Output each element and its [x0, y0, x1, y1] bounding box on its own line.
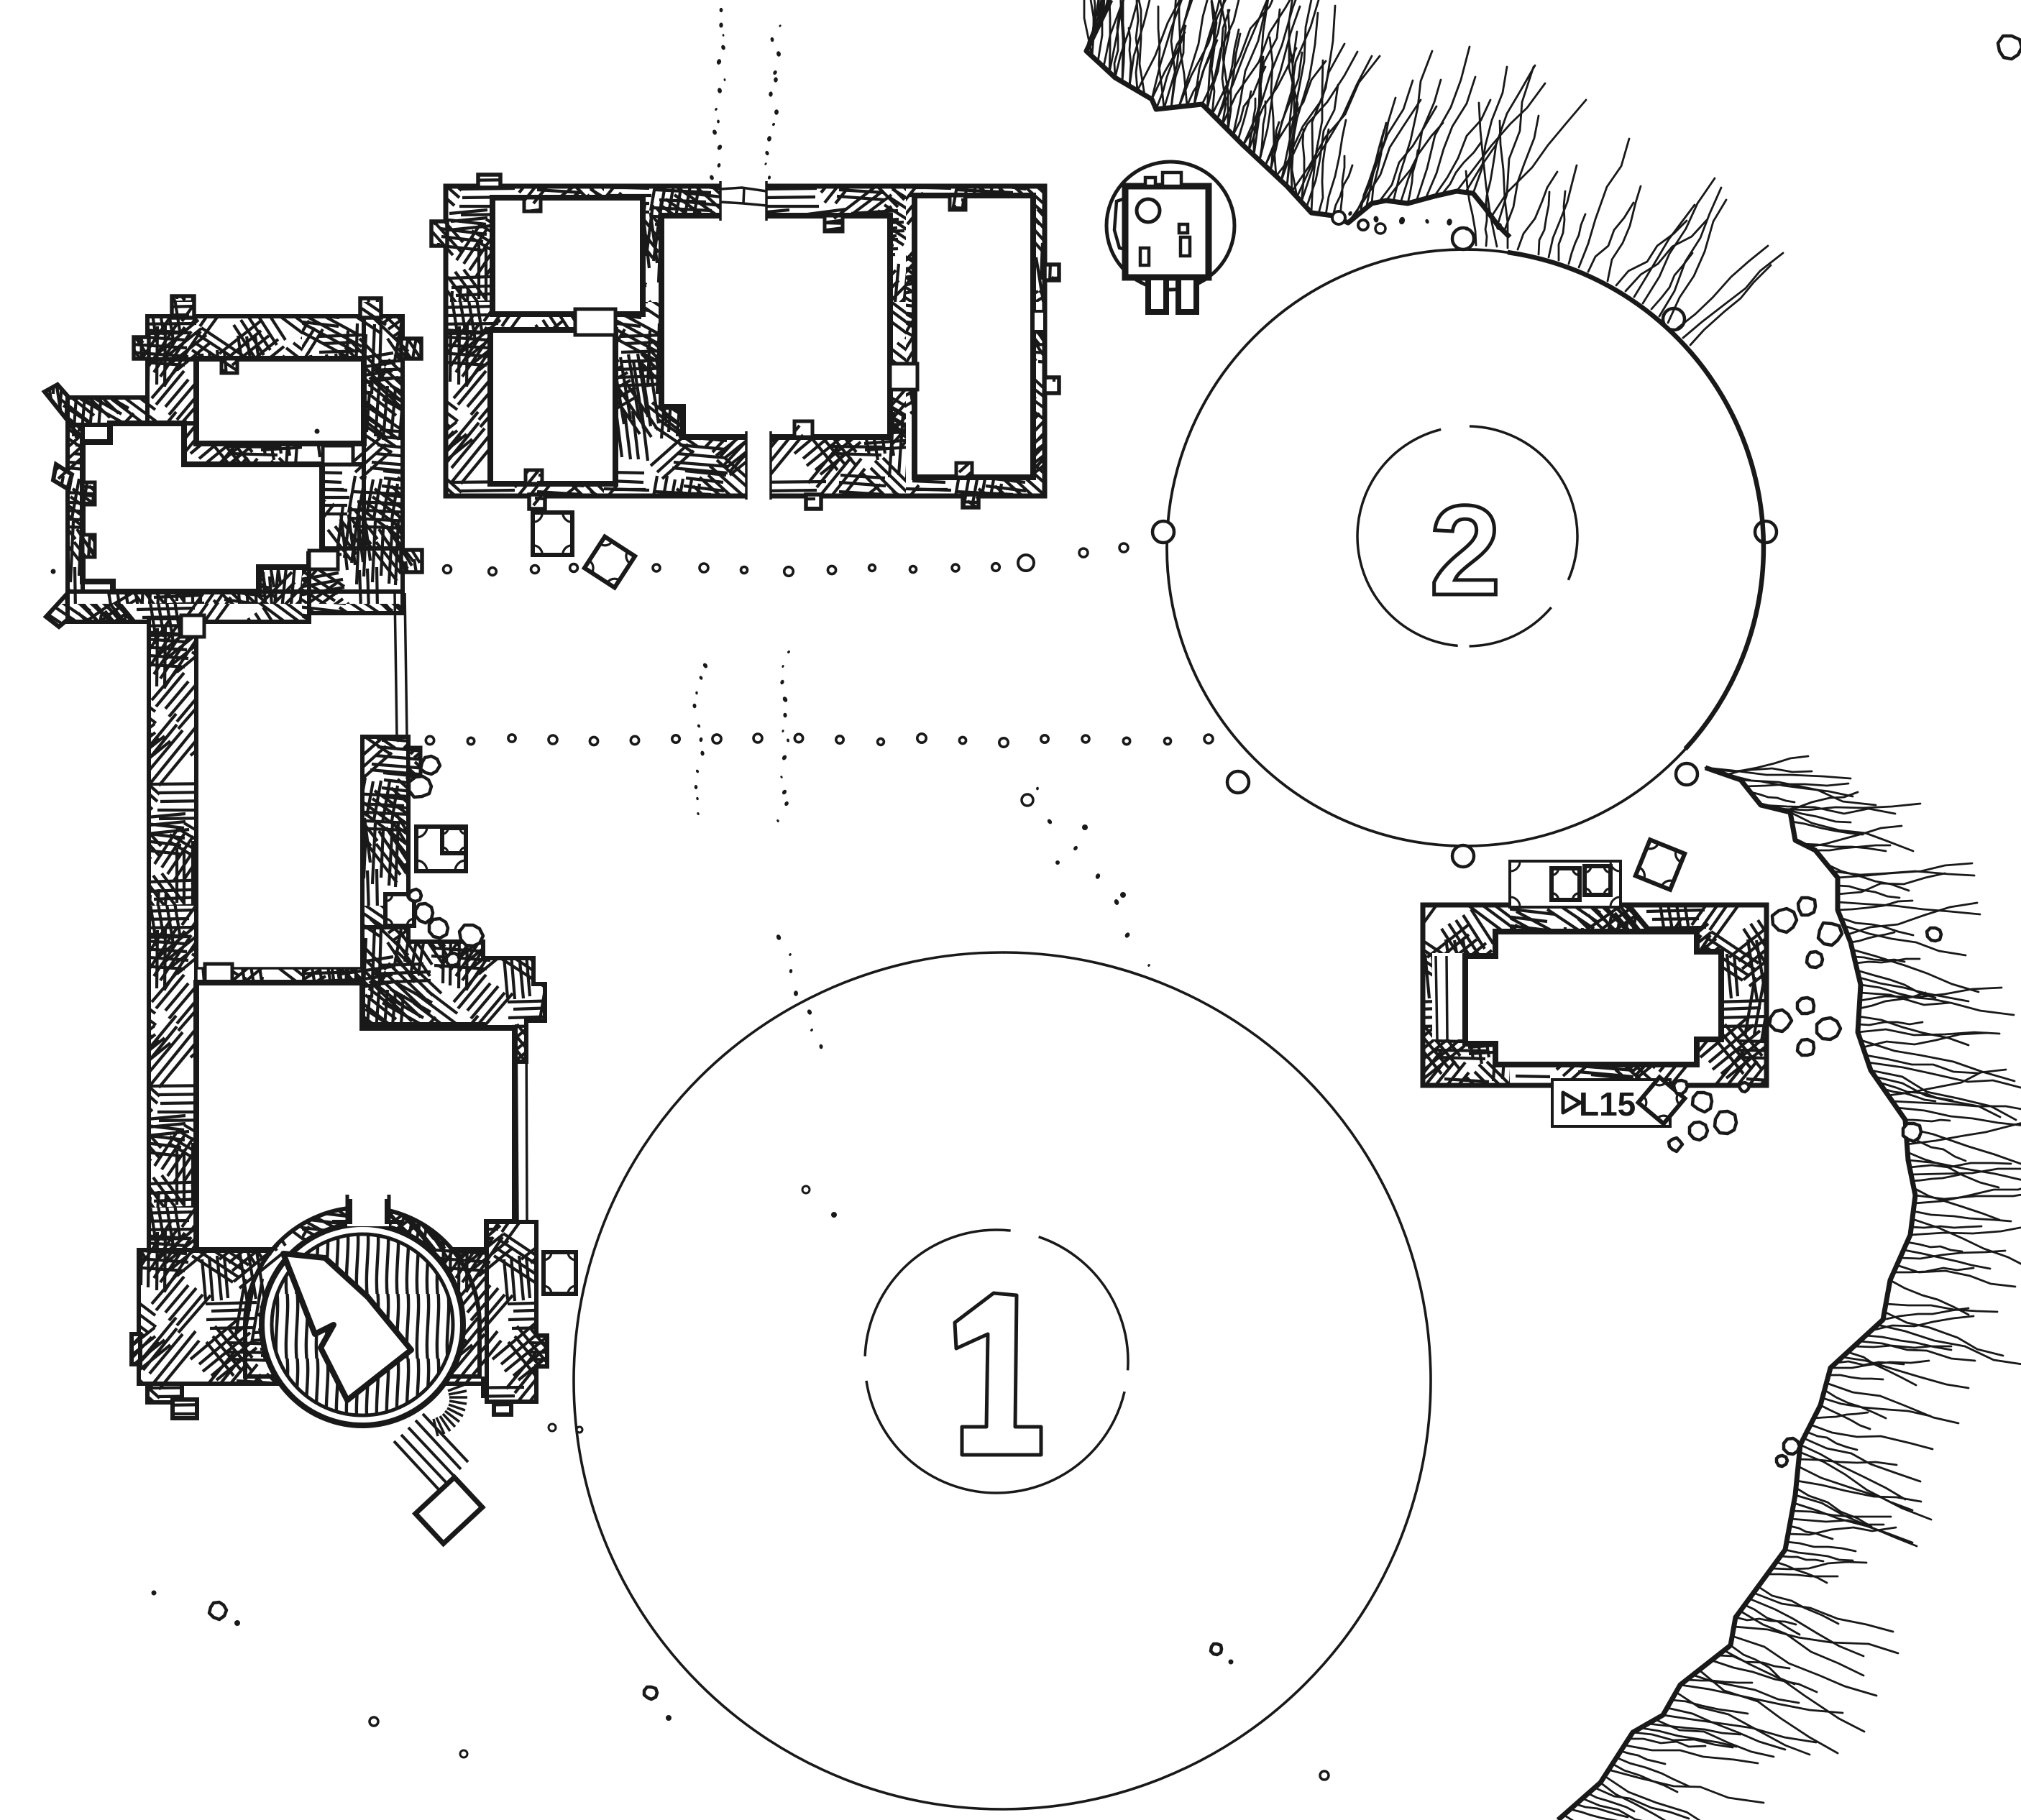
svg-text:2: 2	[1430, 479, 1501, 622]
svg-text:L15: L15	[1579, 1085, 1636, 1123]
